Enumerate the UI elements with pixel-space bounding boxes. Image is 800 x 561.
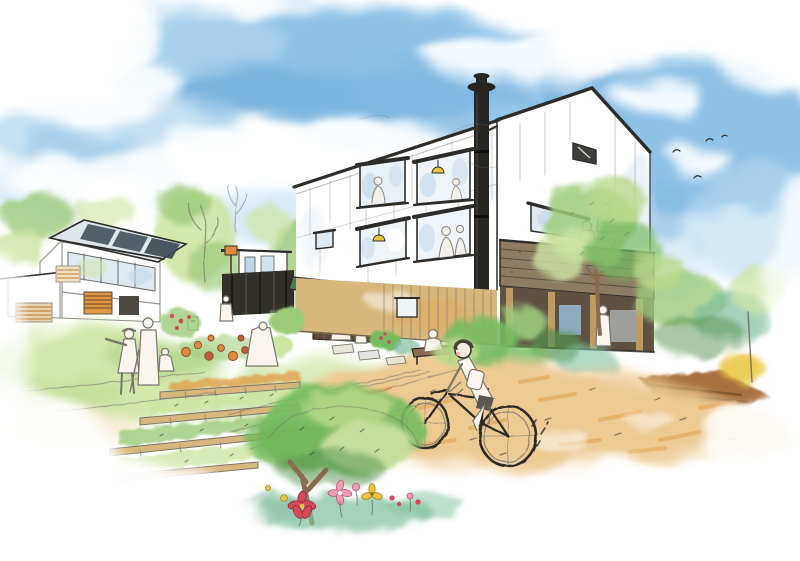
window-lower-right — [414, 206, 473, 262]
gardener-standing — [138, 318, 159, 385]
rider-cheek — [456, 352, 460, 356]
illustration-canvas — [0, 0, 800, 561]
louvre-shutter — [84, 292, 112, 314]
window-small-timber — [395, 298, 419, 317]
cabin-window — [261, 256, 274, 272]
window-small-left — [314, 230, 335, 249]
left-house-door — [119, 296, 139, 315]
side-balcony — [56, 266, 80, 282]
cabin-window — [245, 257, 255, 273]
red-flower-bush — [160, 308, 200, 338]
terrace-opening — [610, 310, 636, 342]
yellow-patch — [720, 354, 764, 382]
illustration-page — [0, 0, 800, 561]
